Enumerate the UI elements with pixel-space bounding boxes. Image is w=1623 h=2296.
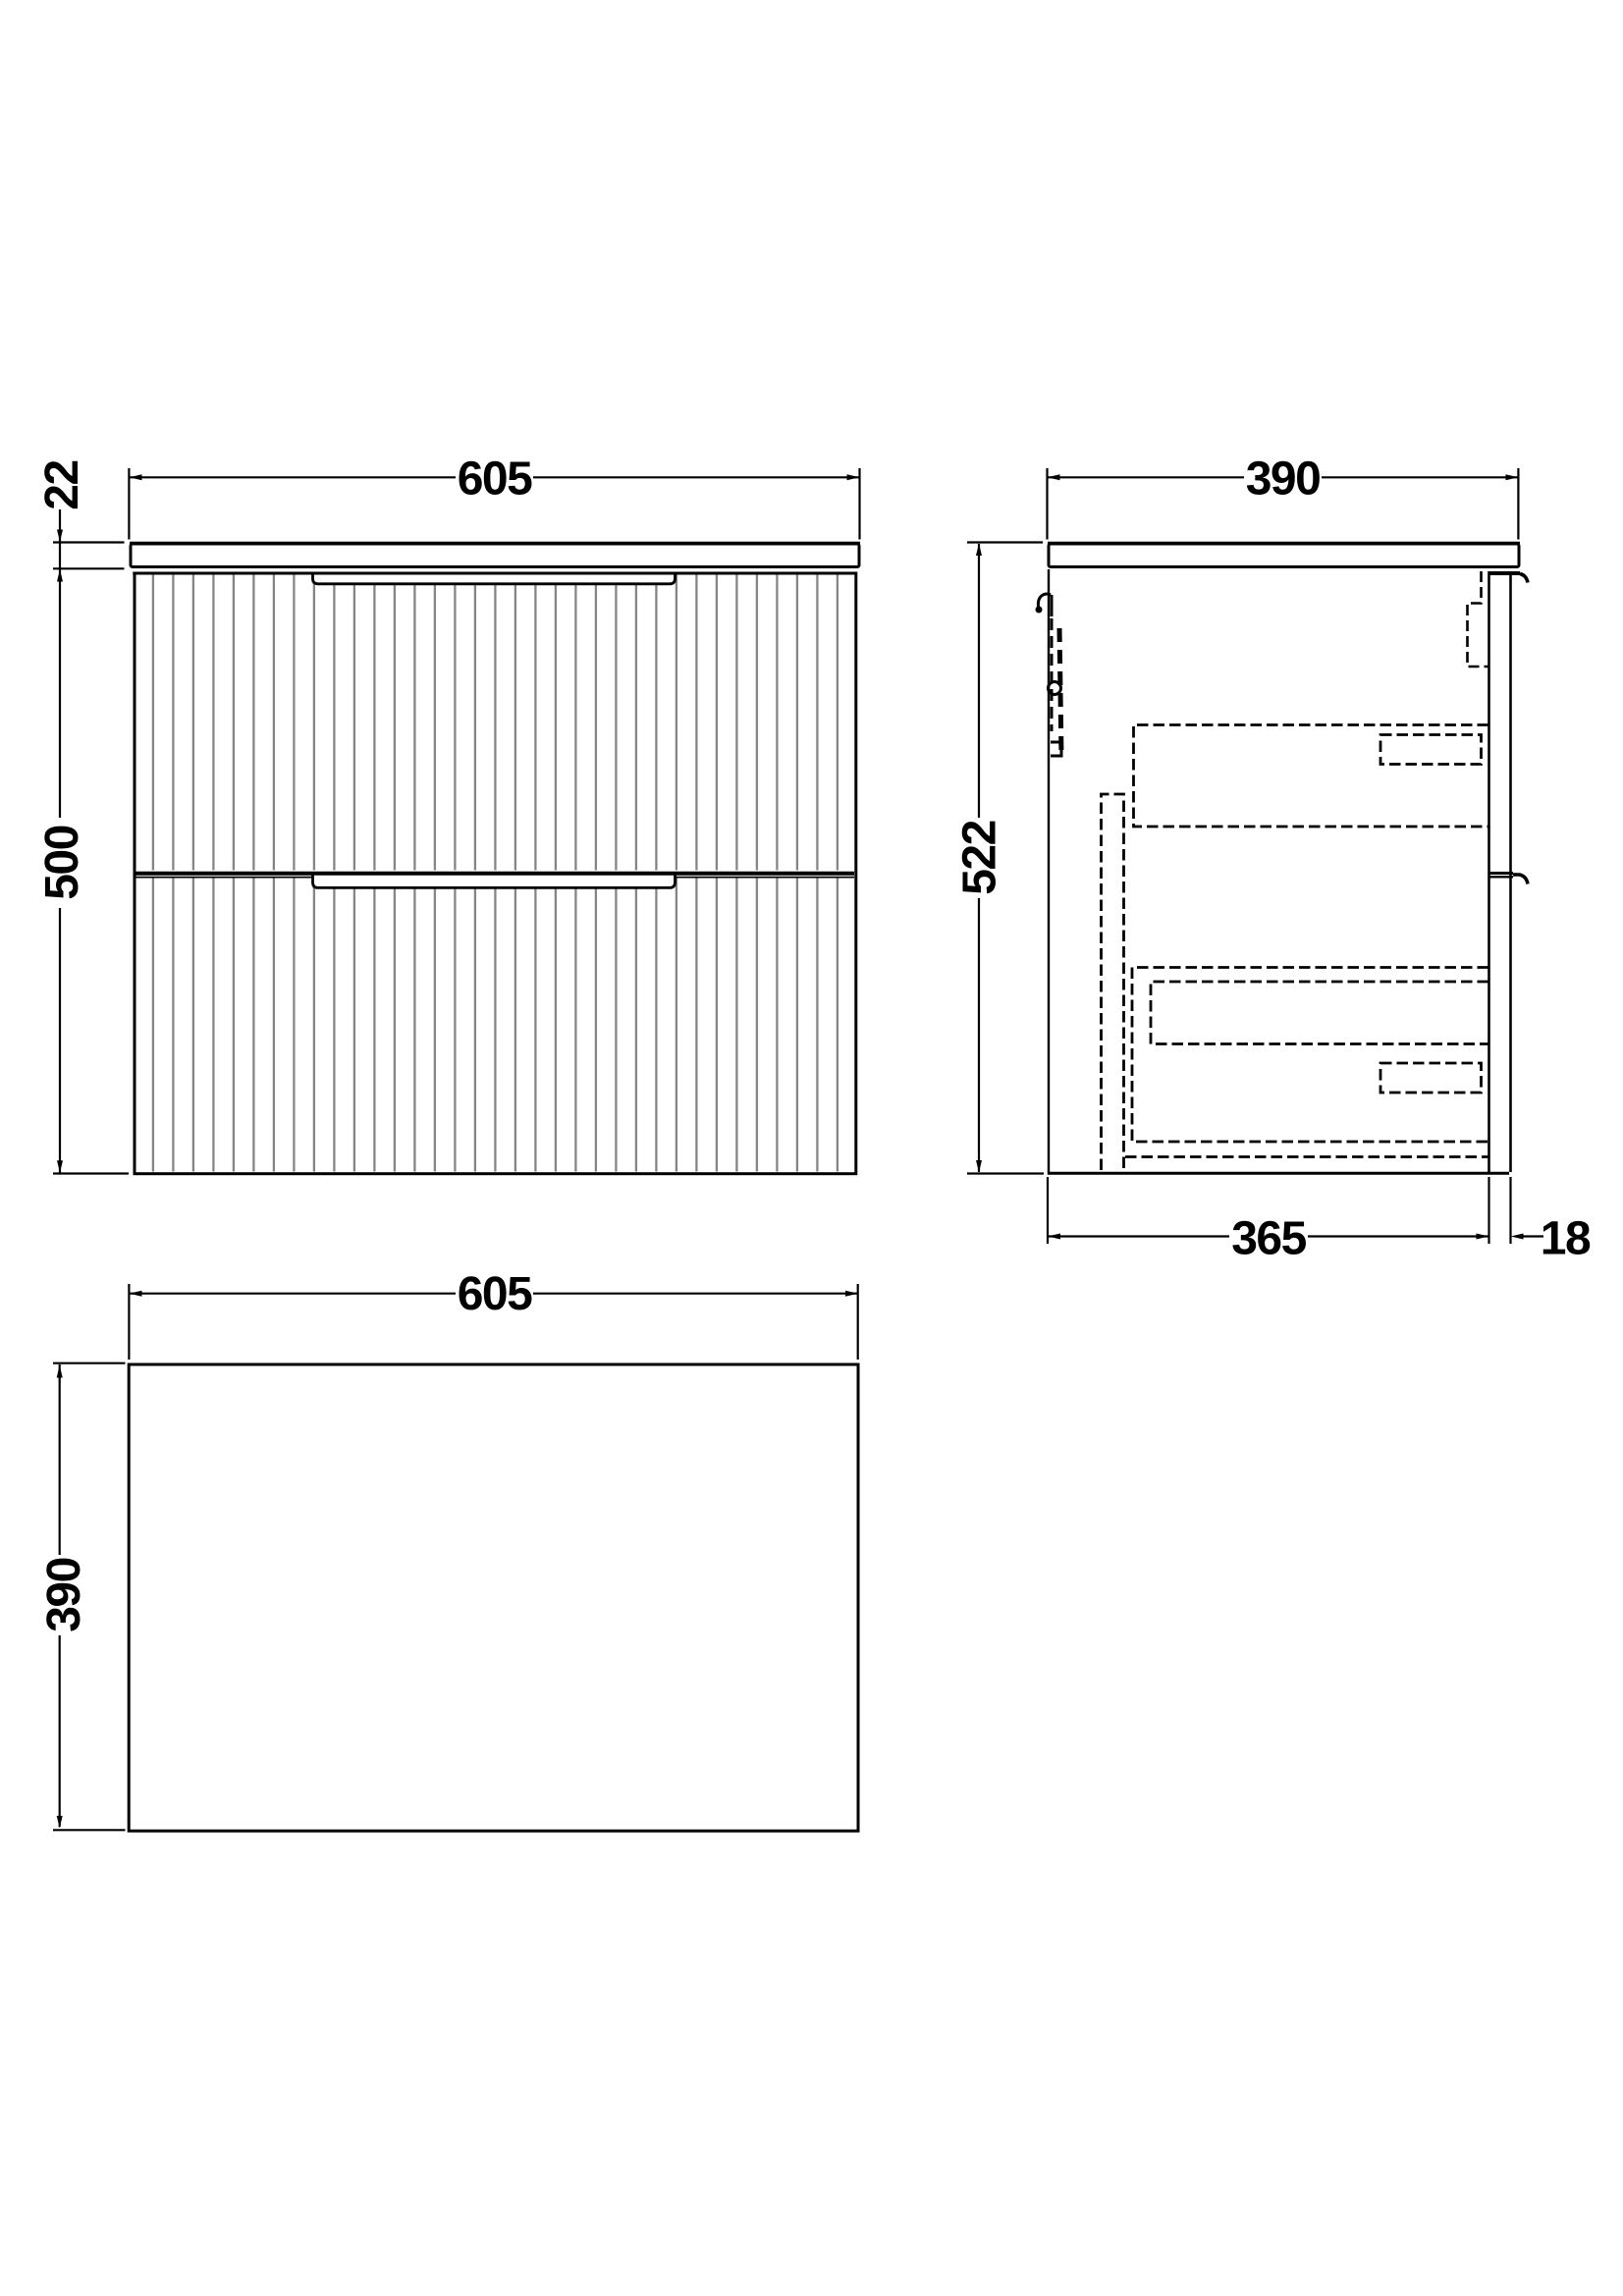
svg-text:18: 18 bbox=[1541, 1213, 1591, 1265]
svg-text:522: 522 bbox=[954, 821, 1006, 895]
svg-text:605: 605 bbox=[458, 1268, 532, 1320]
svg-text:365: 365 bbox=[1231, 1213, 1306, 1265]
svg-text:22: 22 bbox=[36, 460, 88, 509]
svg-text:390: 390 bbox=[38, 1558, 90, 1632]
svg-text:605: 605 bbox=[458, 454, 532, 506]
svg-text:500: 500 bbox=[36, 826, 88, 900]
svg-text:390: 390 bbox=[1246, 454, 1321, 506]
